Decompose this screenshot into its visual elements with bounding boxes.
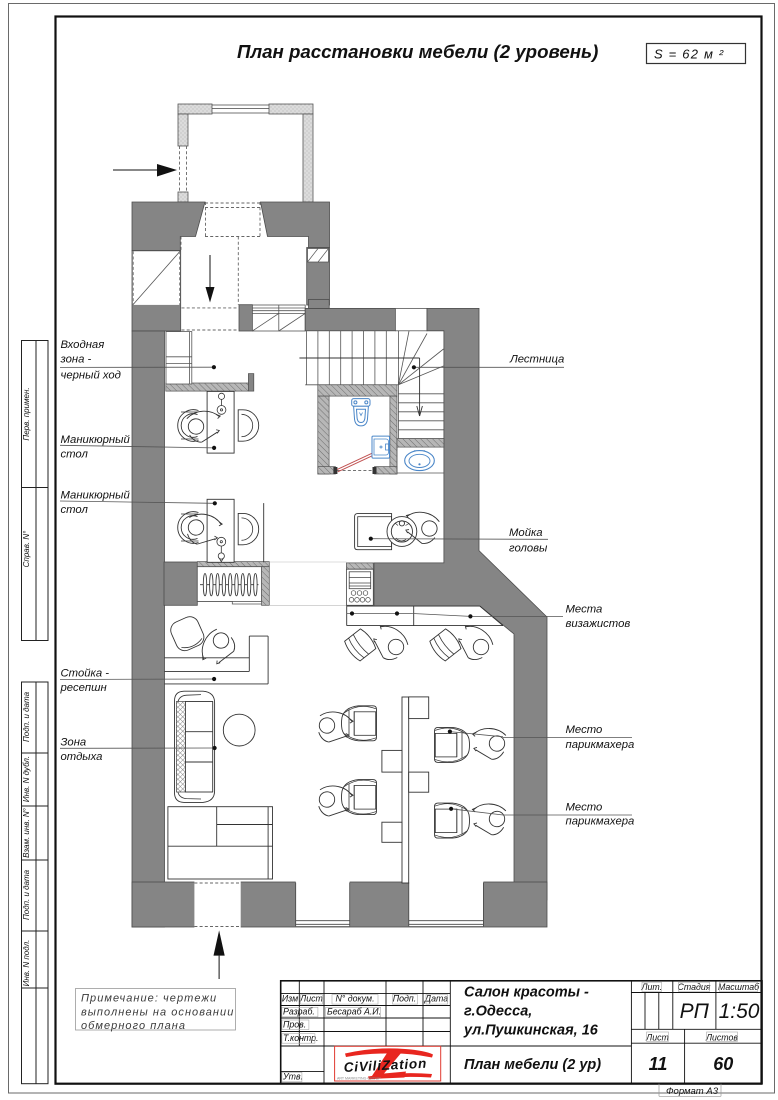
- svg-text:Салон красоты -: Салон красоты -: [464, 985, 589, 1001]
- svg-text:Бесараб А.И.: Бесараб А.И.: [327, 1007, 381, 1017]
- svg-text:Т.контр.: Т.контр.: [283, 1033, 319, 1043]
- svg-text:Место: Место: [566, 802, 603, 814]
- svg-text:Дата: Дата: [424, 994, 448, 1004]
- svg-text:Разраб.: Разраб.: [283, 1007, 315, 1017]
- svg-text:Инв. N дубл.: Инв. N дубл.: [22, 756, 31, 802]
- svg-text:г.Одесса,: г.Одесса,: [464, 1004, 532, 1020]
- svg-text:Инв. N подл.: Инв. N подл.: [22, 940, 31, 987]
- svg-text:черный ход: черный ход: [61, 370, 121, 382]
- svg-text:Лит.: Лит.: [640, 982, 662, 992]
- svg-text:Лестница: Лестница: [509, 354, 564, 366]
- svg-text:Лист: Лист: [645, 1032, 669, 1042]
- svg-text:Подп.: Подп.: [393, 994, 416, 1004]
- svg-text:Изм: Изм: [282, 994, 298, 1004]
- svg-text:Стойка -: Стойка -: [61, 668, 110, 680]
- svg-text:Подп. и дата: Подп. и дата: [22, 869, 31, 920]
- svg-text:зона -: зона -: [60, 354, 92, 366]
- svg-text:ресепшн: ресепшн: [60, 682, 107, 694]
- svg-text:парикмахера: парикмахера: [566, 816, 635, 828]
- svg-text:Зона: Зона: [61, 737, 87, 749]
- svg-text:выполнены на основании: выполнены на основании: [81, 1007, 234, 1019]
- svg-text:Место: Место: [566, 724, 603, 736]
- svg-text:Формат А3: Формат А3: [666, 1086, 719, 1097]
- svg-text:парикмахера: парикмахера: [566, 739, 635, 751]
- svg-text:ул.Пушкинская, 16: ул.Пушкинская, 16: [463, 1023, 599, 1039]
- svg-text:ART MARKETING GROUP: ART MARKETING GROUP: [337, 1076, 381, 1080]
- svg-text:1:50: 1:50: [719, 1000, 760, 1023]
- svg-text:Маникюрный: Маникюрный: [61, 434, 131, 446]
- svg-text:S = 62 м ²: S = 62 м ²: [654, 47, 724, 62]
- svg-text:Примечание: чертежи: Примечание: чертежи: [81, 993, 217, 1005]
- svg-text:Стадия: Стадия: [678, 982, 711, 992]
- svg-text:стол: стол: [61, 449, 89, 461]
- svg-text:головы: головы: [509, 543, 548, 555]
- svg-text:обмерного плана: обмерного плана: [81, 1020, 186, 1032]
- svg-text:Листов: Листов: [705, 1032, 738, 1042]
- svg-text:Справ. N°: Справ. N°: [22, 530, 31, 567]
- svg-text:стол: стол: [61, 504, 89, 516]
- svg-text:Утв.: Утв.: [282, 1072, 303, 1082]
- svg-text:План мебели (2 ур): План мебели (2 ур): [464, 1057, 601, 1073]
- svg-text:РП: РП: [680, 1000, 710, 1023]
- svg-text:60: 60: [713, 1054, 733, 1074]
- svg-text:Входная: Входная: [61, 339, 105, 351]
- svg-text:Взам. инв. N°: Взам. инв. N°: [22, 807, 31, 858]
- svg-text:Места: Места: [566, 604, 603, 616]
- svg-text:Перв. примен.: Перв. примен.: [22, 387, 31, 440]
- svg-text:План расстановки мебели (2 ур: План расстановки мебели (2 уровень): [237, 41, 598, 62]
- svg-text:Маникюрный: Маникюрный: [61, 490, 131, 502]
- svg-text:Масштаб: Масштаб: [718, 982, 760, 992]
- svg-text:Лист: Лист: [299, 994, 323, 1004]
- svg-text:отдыха: отдыха: [61, 751, 103, 763]
- svg-text:визажистов: визажистов: [566, 618, 631, 630]
- svg-text:Пров.: Пров.: [283, 1020, 306, 1030]
- svg-text:Подп. и дата: Подп. и дата: [22, 691, 31, 742]
- svg-text:Мойка: Мойка: [509, 527, 543, 539]
- svg-text:N° докум.: N° докум.: [335, 994, 374, 1004]
- svg-text:11: 11: [649, 1054, 668, 1074]
